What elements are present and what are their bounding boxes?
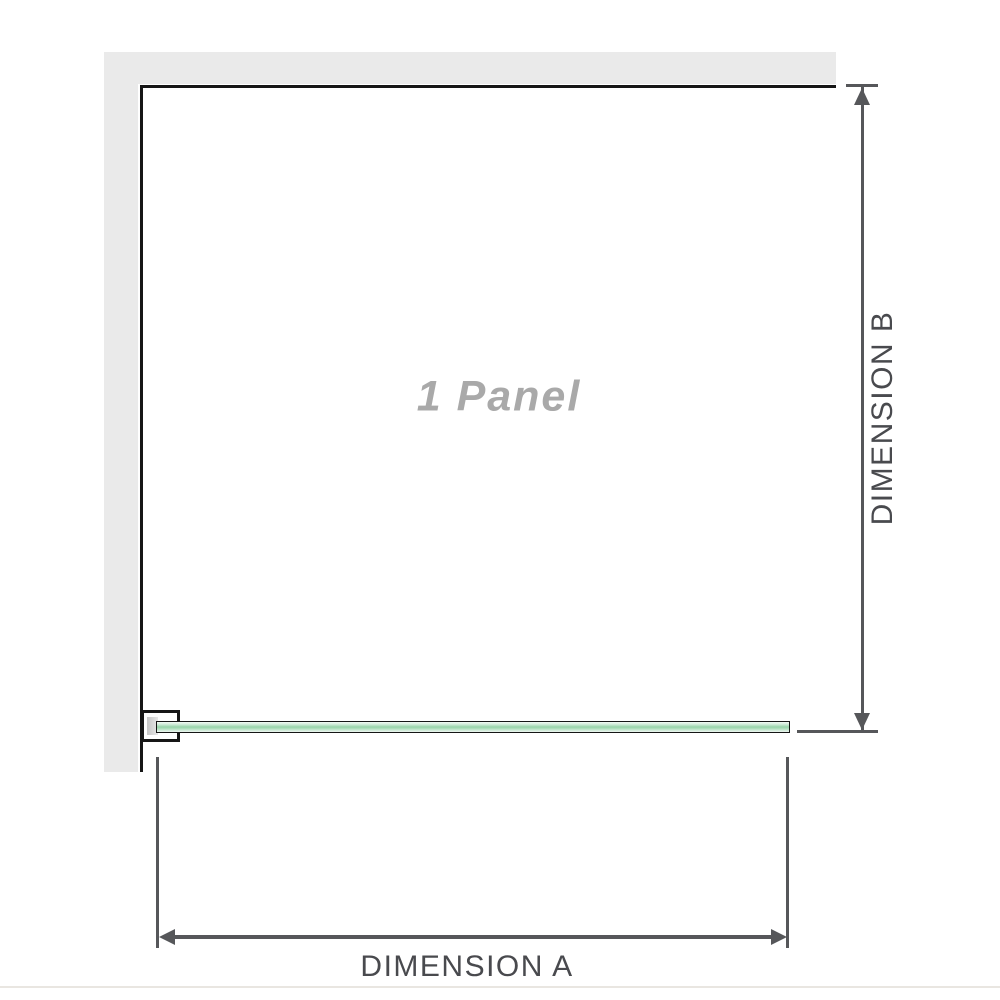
enclosure-left-edge bbox=[140, 85, 143, 772]
dimension-b-line bbox=[861, 87, 865, 730]
dimension-a-left-extension-line bbox=[156, 757, 159, 948]
dimension-b-down-arrowhead-icon bbox=[854, 713, 870, 730]
dimension-a-right-arrowhead-icon bbox=[771, 929, 787, 945]
page-bottom-rule bbox=[0, 986, 1000, 988]
dimension-b-label: DIMENSION B bbox=[866, 311, 900, 526]
shower-screen-diagram: 1 Panel DIMENSION B DIMENSION A bbox=[0, 0, 1000, 1000]
dimension-a-line bbox=[172, 935, 774, 939]
wall-left bbox=[104, 52, 138, 772]
glass-panel bbox=[156, 721, 790, 733]
dimension-a-left-arrowhead-icon bbox=[159, 929, 175, 945]
wall-top bbox=[104, 52, 836, 84]
dimension-a-label: DIMENSION A bbox=[360, 950, 573, 984]
enclosure-top-edge bbox=[140, 85, 836, 88]
dimension-a-right-extension-line bbox=[786, 757, 789, 948]
panel-count-watermark: 1 Panel bbox=[417, 373, 582, 422]
dimension-b-up-arrowhead-icon bbox=[854, 88, 870, 105]
dimension-b-bottom-tick bbox=[797, 730, 878, 733]
